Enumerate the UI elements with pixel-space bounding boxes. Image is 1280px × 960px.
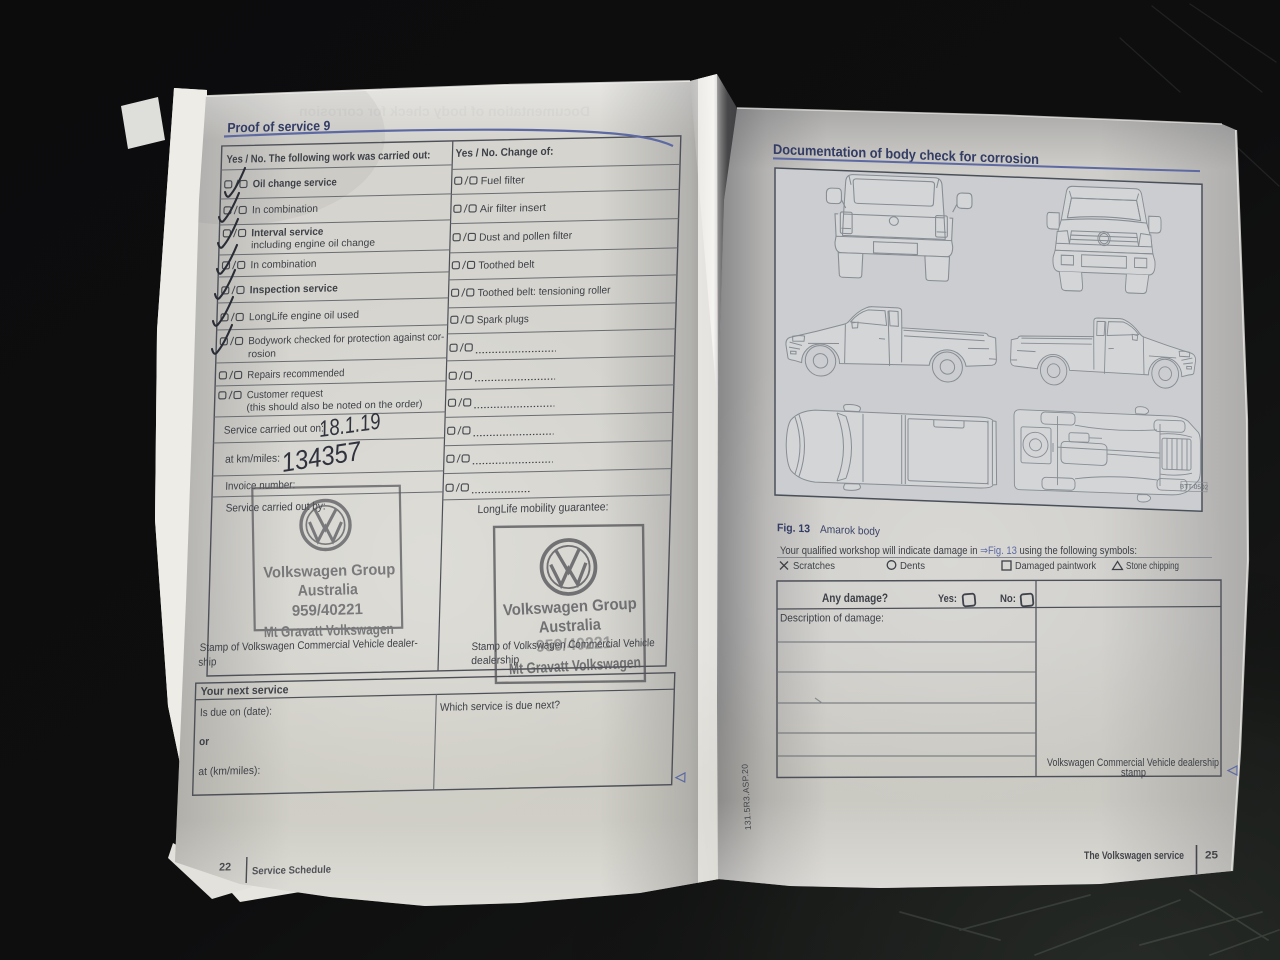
svg-text:stamp: stamp (1121, 767, 1146, 779)
svg-text:25: 25 (1205, 850, 1218, 862)
svg-text:Repairs recommended: Repairs recommended (247, 367, 344, 381)
svg-text:Interval service: Interval service (251, 226, 323, 240)
svg-text:ship: ship (198, 656, 216, 668)
svg-text:Fuel filter: Fuel filter (481, 174, 526, 187)
svg-text:Inspection service: Inspection service (250, 282, 338, 296)
svg-text:In combination: In combination (250, 258, 316, 271)
svg-text:Spark plugs: Spark plugs (477, 313, 529, 326)
svg-text:Customer request: Customer request (247, 388, 323, 402)
svg-text:In combination: In combination (252, 203, 318, 216)
svg-text:Air filter insert: Air filter insert (480, 202, 546, 215)
svg-text:Your next service: Your next service (200, 684, 288, 698)
svg-text:Oil change service: Oil change service (253, 176, 337, 190)
svg-text:Toothed belt: Toothed belt (478, 259, 534, 272)
svg-text:Description of damage:: Description of damage: (780, 613, 884, 625)
svg-text:Your qualified workshop will i: Your qualified workshop will indicate da… (780, 545, 1137, 557)
svg-text:959/40221: 959/40221 (292, 601, 364, 620)
svg-text:Service Schedule: Service Schedule (252, 864, 331, 878)
svg-text:Service carried out on:: Service carried out on: (224, 423, 324, 437)
svg-text:BTT-0502: BTT-0502 (1180, 483, 1209, 491)
svg-text:The Volkswagen service: The Volkswagen service (1084, 850, 1184, 862)
svg-text:Is due on (date):: Is due on (date): (200, 706, 272, 720)
svg-text:Fig. 13: Fig. 13 (777, 522, 810, 535)
svg-text:Volkswagen Group: Volkswagen Group (263, 561, 395, 581)
svg-text:Amarok body: Amarok body (820, 524, 880, 538)
svg-text:at (km/miles):: at (km/miles): (198, 765, 260, 778)
svg-text:Invoice number:: Invoice number: (225, 479, 295, 493)
svg-text:Scratches: Scratches (793, 561, 835, 572)
svg-text:Documentation of body check fo: Documentation of body check for corrosio… (299, 103, 590, 119)
svg-text:Stone chipping: Stone chipping (1126, 561, 1179, 572)
svg-text:Yes:: Yes: (938, 593, 957, 605)
svg-text:Dents: Dents (900, 561, 925, 572)
svg-text:Australia: Australia (298, 581, 359, 600)
svg-text:22: 22 (219, 861, 231, 873)
svg-text:959/40221: 959/40221 (535, 633, 612, 656)
svg-text:Dust and pollen filter: Dust and pollen filter (479, 230, 573, 244)
svg-text:at km/miles:: at km/miles: (225, 453, 280, 466)
svg-text:rosion: rosion (248, 349, 276, 361)
svg-text:No:: No: (1000, 593, 1016, 605)
svg-text:Yes / No. Change of:: Yes / No. Change of: (455, 146, 553, 160)
svg-text:Mt Gravatt Volkswagen: Mt Gravatt Volkswagen (264, 621, 394, 641)
svg-text:or: or (199, 736, 210, 748)
svg-text:Damaged paintwork: Damaged paintwork (1015, 561, 1097, 572)
svg-text:LongLife engine oil used: LongLife engine oil used (249, 309, 359, 323)
svg-text:Any damage?: Any damage? (822, 593, 888, 605)
